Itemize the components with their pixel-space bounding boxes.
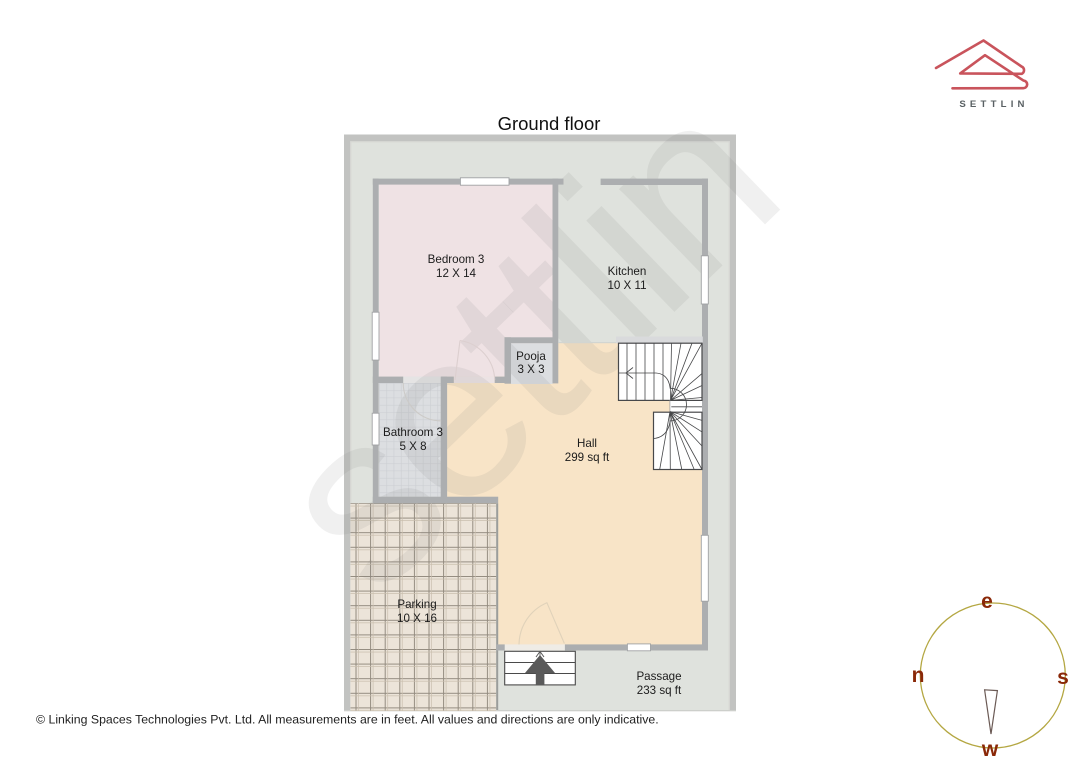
svg-text:e: e (981, 590, 993, 613)
svg-text:Parking: Parking (397, 598, 436, 611)
svg-text:Bedroom 3: Bedroom 3 (428, 253, 485, 266)
svg-text:Hall: Hall (577, 437, 597, 450)
svg-text:Passage: Passage (636, 670, 681, 683)
svg-text:SETTLIN: SETTLIN (959, 99, 1028, 110)
svg-text:10 X 11: 10 X 11 (607, 279, 646, 292)
svg-text:3 X 3: 3 X 3 (517, 363, 544, 376)
svg-text:10 X 16: 10 X 16 (397, 612, 437, 625)
svg-text:5 X 8: 5 X 8 (399, 440, 426, 453)
svg-text:w: w (981, 738, 999, 761)
svg-text:299 sq ft: 299 sq ft (565, 451, 610, 464)
svg-text:Pooja: Pooja (516, 350, 546, 363)
svg-text:© Linking Spaces Technologies: © Linking Spaces Technologies Pvt. Ltd. … (36, 713, 659, 727)
svg-text:Bathroom 3: Bathroom 3 (383, 426, 443, 439)
svg-text:n: n (912, 664, 925, 687)
svg-text:12 X 14: 12 X 14 (436, 267, 477, 280)
svg-text:Kitchen: Kitchen (608, 265, 647, 278)
svg-text:233 sq ft: 233 sq ft (637, 684, 682, 697)
svg-text:s: s (1057, 666, 1069, 689)
